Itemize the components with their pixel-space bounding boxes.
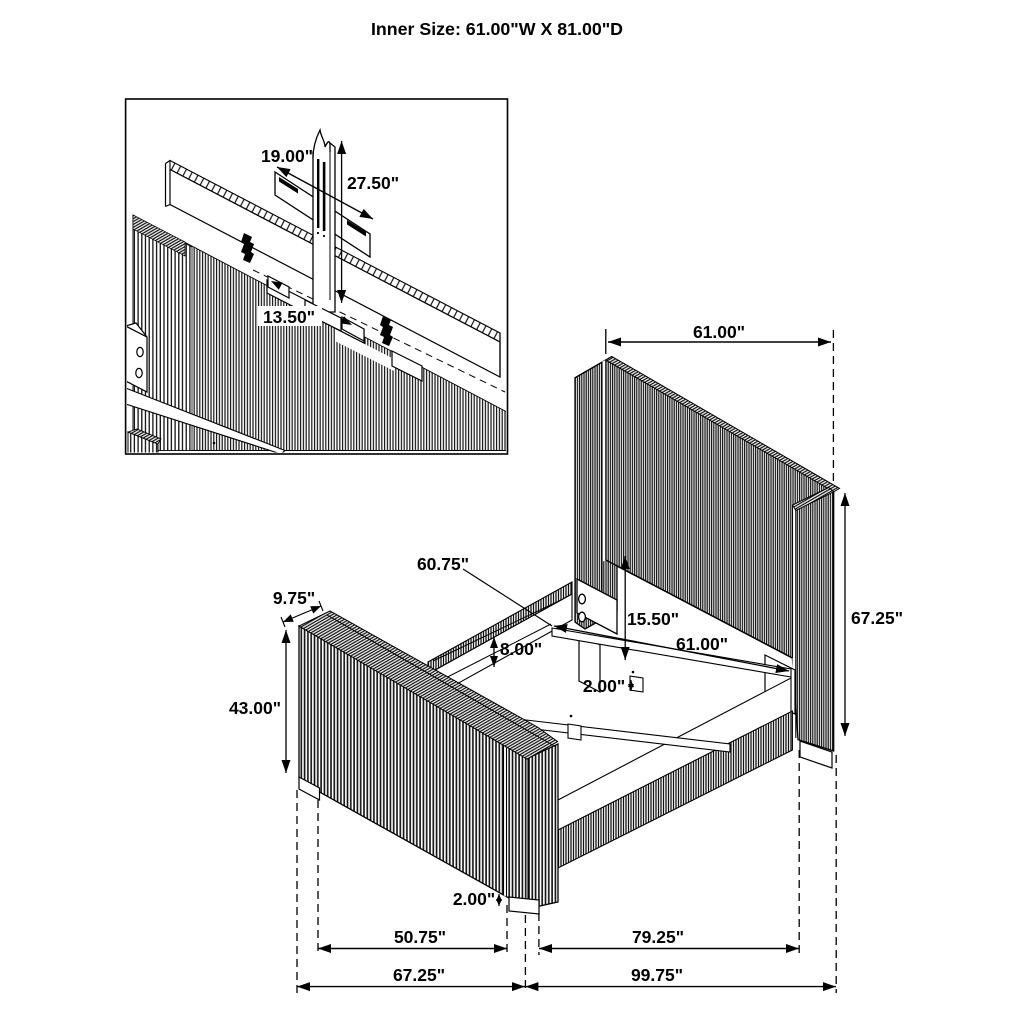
- svg-text:60.75": 60.75": [417, 554, 469, 574]
- svg-text:43.00": 43.00": [229, 698, 281, 718]
- svg-text:19.00": 19.00": [261, 146, 313, 166]
- svg-text:8.00": 8.00": [500, 639, 542, 659]
- svg-text:99.75": 99.75": [631, 965, 683, 985]
- svg-text:61.00": 61.00": [676, 634, 728, 654]
- svg-text:2.00": 2.00": [453, 889, 495, 909]
- svg-text:15.50": 15.50": [627, 609, 679, 629]
- svg-text:9.75": 9.75": [273, 588, 315, 608]
- svg-text:67.25": 67.25": [393, 965, 445, 985]
- svg-text:79.25": 79.25": [632, 927, 684, 947]
- svg-text:50.75": 50.75": [394, 927, 446, 947]
- svg-text:2.00": 2.00": [583, 676, 625, 696]
- svg-text:13.50": 13.50": [263, 307, 315, 327]
- svg-text:67.25": 67.25": [851, 608, 903, 628]
- svg-text:27.50": 27.50": [347, 173, 399, 193]
- svg-text:Inner Size: 61.00"W X 81.00"D: Inner Size: 61.00"W X 81.00"D: [371, 19, 623, 39]
- svg-text:61.00": 61.00": [693, 322, 745, 342]
